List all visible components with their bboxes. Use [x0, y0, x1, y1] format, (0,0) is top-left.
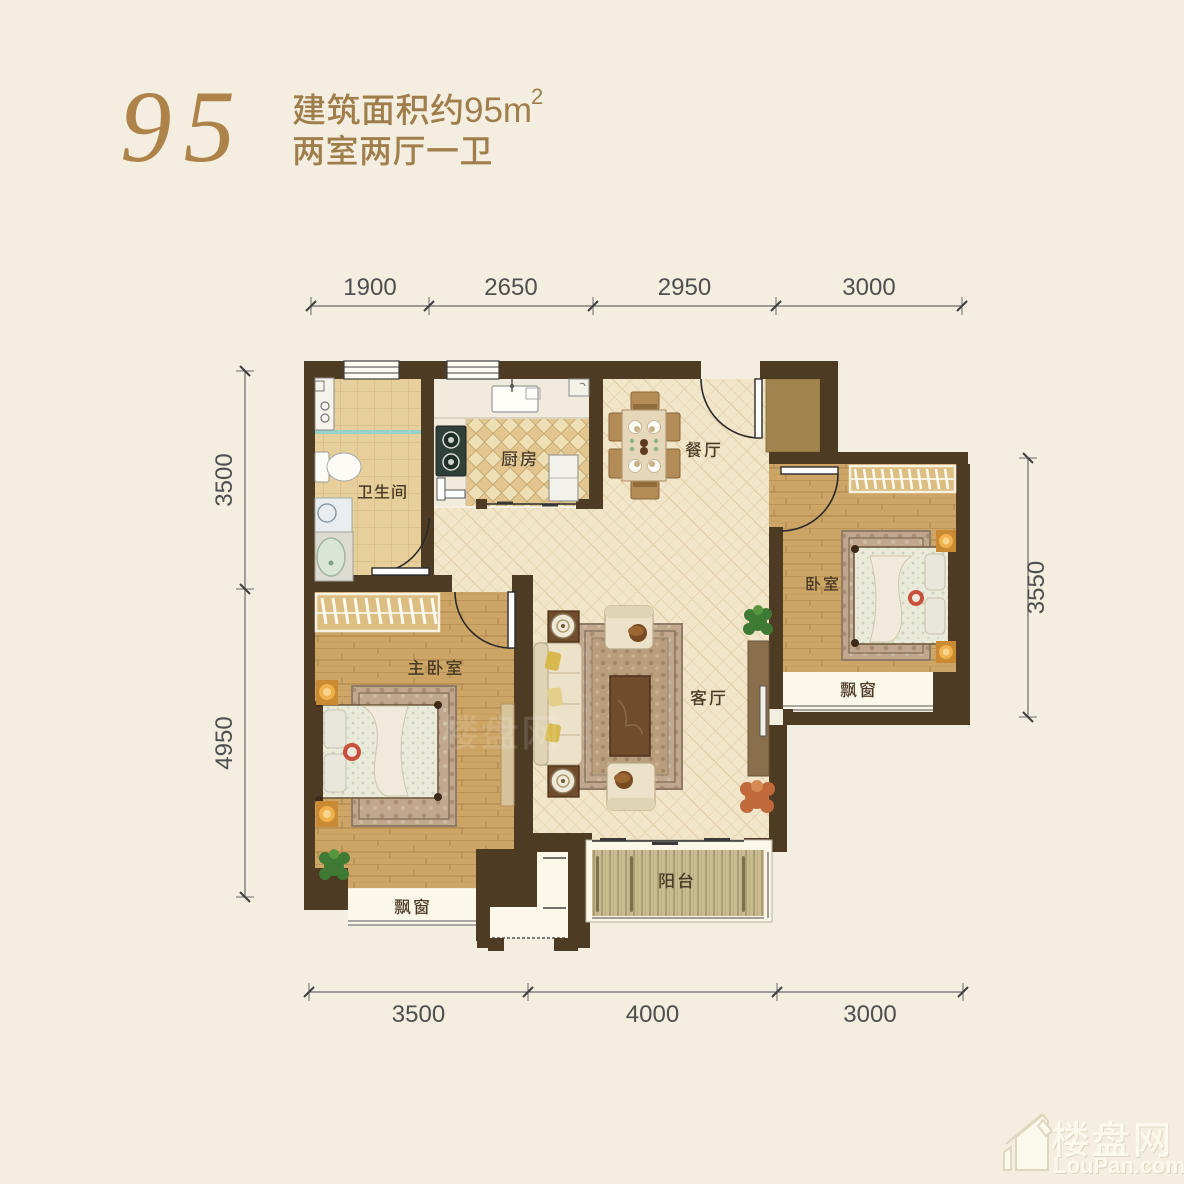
svg-text:2650: 2650 [484, 274, 537, 301]
svg-text:3000: 3000 [843, 1001, 896, 1028]
svg-text:2950: 2950 [658, 274, 711, 301]
svg-text:4950: 4950 [211, 716, 238, 769]
svg-text:95: 95 [120, 70, 247, 184]
svg-text:3550: 3550 [1023, 561, 1050, 614]
svg-text:4000: 4000 [626, 1001, 679, 1028]
svg-text:95m: 95m [464, 91, 532, 130]
svg-text:LouPan.com: LouPan.com [1053, 1153, 1184, 1178]
svg-text:3500: 3500 [211, 453, 238, 506]
svg-text:2: 2 [531, 84, 543, 109]
svg-text:3500: 3500 [392, 1001, 445, 1028]
svg-text:3000: 3000 [842, 274, 895, 301]
svg-text:1900: 1900 [343, 274, 396, 301]
